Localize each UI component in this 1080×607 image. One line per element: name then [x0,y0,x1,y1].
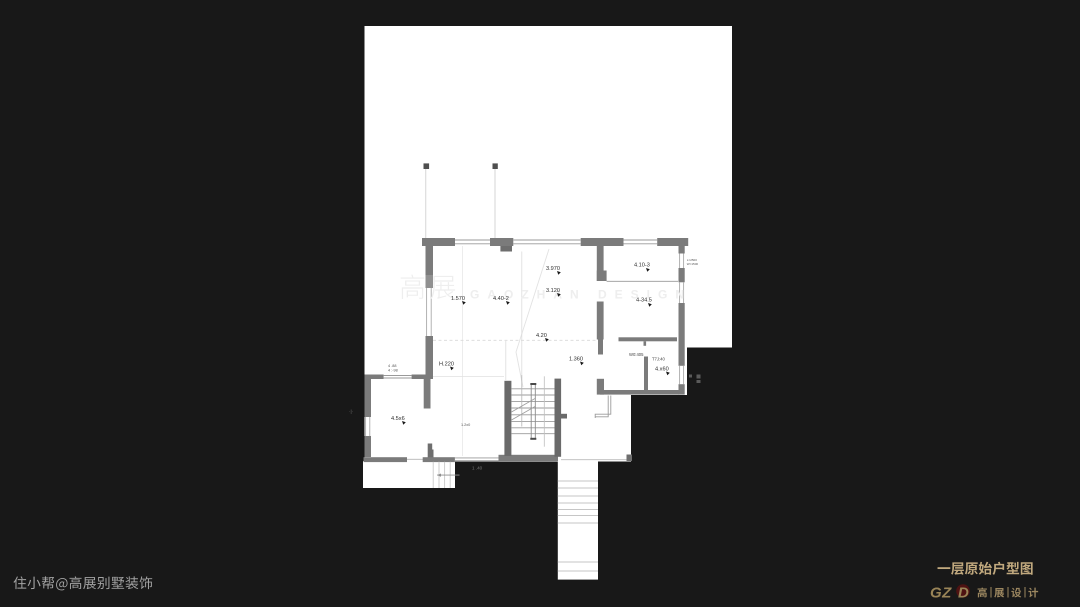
svg-text:1.2x0: 1.2x0 [461,423,470,427]
svg-text:3.120: 3.120 [546,288,560,294]
svg-text:W0:405: W0:405 [629,352,644,357]
svg-text:4 :-98: 4 :-98 [388,369,398,373]
svg-text:4.10-3: 4.10-3 [634,263,650,269]
svg-text:4.x60: 4.x60 [655,367,669,373]
svg-text:GZ: GZ [930,585,952,602]
svg-text:T7J:40: T7J:40 [652,357,665,362]
svg-text:1 .40: 1 .40 [472,466,483,471]
svg-text:4 .88: 4 .88 [388,364,396,368]
svg-text:4.40-2: 4.40-2 [493,296,509,302]
svg-text:·|·: ·|· [349,409,353,414]
svg-text:4-34.5: 4-34.5 [636,298,652,304]
svg-text:1.570: 1.570 [451,296,465,302]
svg-text:4.5x6: 4.5x6 [391,416,405,422]
svg-text:1.360: 1.360 [569,357,583,363]
svg-text:H.220: H.220 [439,362,454,368]
svg-text:D: D [958,585,969,602]
svg-text:W=1500: W=1500 [687,262,699,266]
svg-text:3.970: 3.970 [546,266,560,272]
